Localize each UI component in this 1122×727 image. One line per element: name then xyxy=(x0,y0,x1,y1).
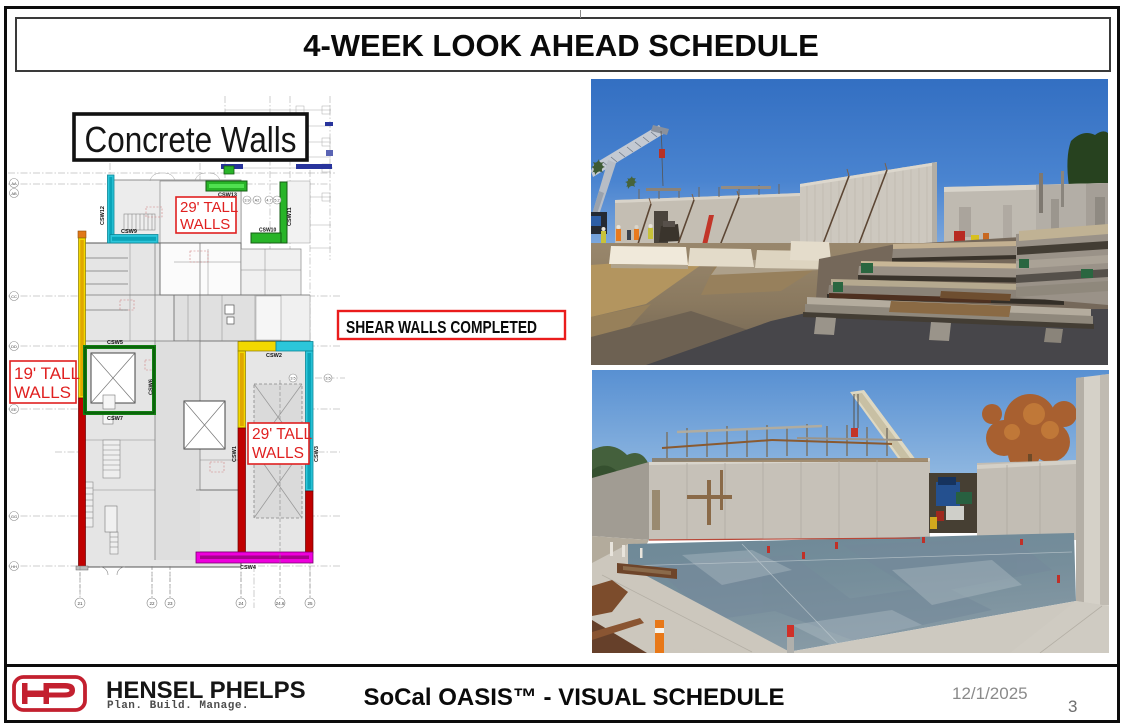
svg-text:CSW1: CSW1 xyxy=(232,446,238,462)
svg-text:23: 23 xyxy=(167,601,173,606)
svg-text:WALLS: WALLS xyxy=(180,216,230,233)
svg-text:22: 22 xyxy=(149,601,155,606)
svg-text:CSW10: CSW10 xyxy=(259,228,276,234)
svg-text:4.7: 4.7 xyxy=(266,199,271,203)
svg-text:AA: AA xyxy=(11,181,17,186)
svg-text:CSW7: CSW7 xyxy=(107,416,123,422)
svg-text:WALLS: WALLS xyxy=(14,383,71,402)
svg-text:21: 21 xyxy=(77,601,83,606)
svg-text:SHEAR WALLS COMPLETED: SHEAR WALLS COMPLETED xyxy=(346,317,537,337)
svg-text:24: 24 xyxy=(238,601,244,606)
svg-text:Concrete Walls: Concrete Walls xyxy=(85,119,297,160)
svg-text:CSW11: CSW11 xyxy=(287,207,293,226)
svg-text:CSW4: CSW4 xyxy=(240,565,257,571)
svg-text:CSW3: CSW3 xyxy=(314,446,320,462)
svg-text:EE: EE xyxy=(11,407,17,412)
svg-text:CSW6: CSW6 xyxy=(149,379,155,395)
svg-text:25: 25 xyxy=(307,601,313,606)
svg-text:CSW9: CSW9 xyxy=(121,229,137,235)
svg-text:HH: HH xyxy=(11,564,17,569)
svg-text:5.2: 5.2 xyxy=(274,199,279,203)
svg-text:GG: GG xyxy=(11,514,17,519)
svg-text:WALLS: WALLS xyxy=(252,445,304,462)
svg-text:3.5: 3.5 xyxy=(290,377,295,381)
svg-text:CSW5: CSW5 xyxy=(107,340,123,346)
svg-text:24.6: 24.6 xyxy=(276,601,285,606)
svg-text:19' TALL: 19' TALL xyxy=(14,364,80,383)
svg-text:DD: DD xyxy=(11,344,17,349)
svg-text:3.9: 3.9 xyxy=(244,199,249,203)
svg-text:A2: A2 xyxy=(255,199,260,203)
svg-text:29' TALL: 29' TALL xyxy=(180,199,238,216)
svg-text:AB: AB xyxy=(11,191,17,196)
svg-text:CSW2: CSW2 xyxy=(266,353,282,359)
svg-text:CSW12: CSW12 xyxy=(100,206,106,225)
svg-text:3.5: 3.5 xyxy=(325,377,330,381)
svg-text:29' TALL: 29' TALL xyxy=(252,426,313,443)
svg-text:CC: CC xyxy=(11,294,17,299)
